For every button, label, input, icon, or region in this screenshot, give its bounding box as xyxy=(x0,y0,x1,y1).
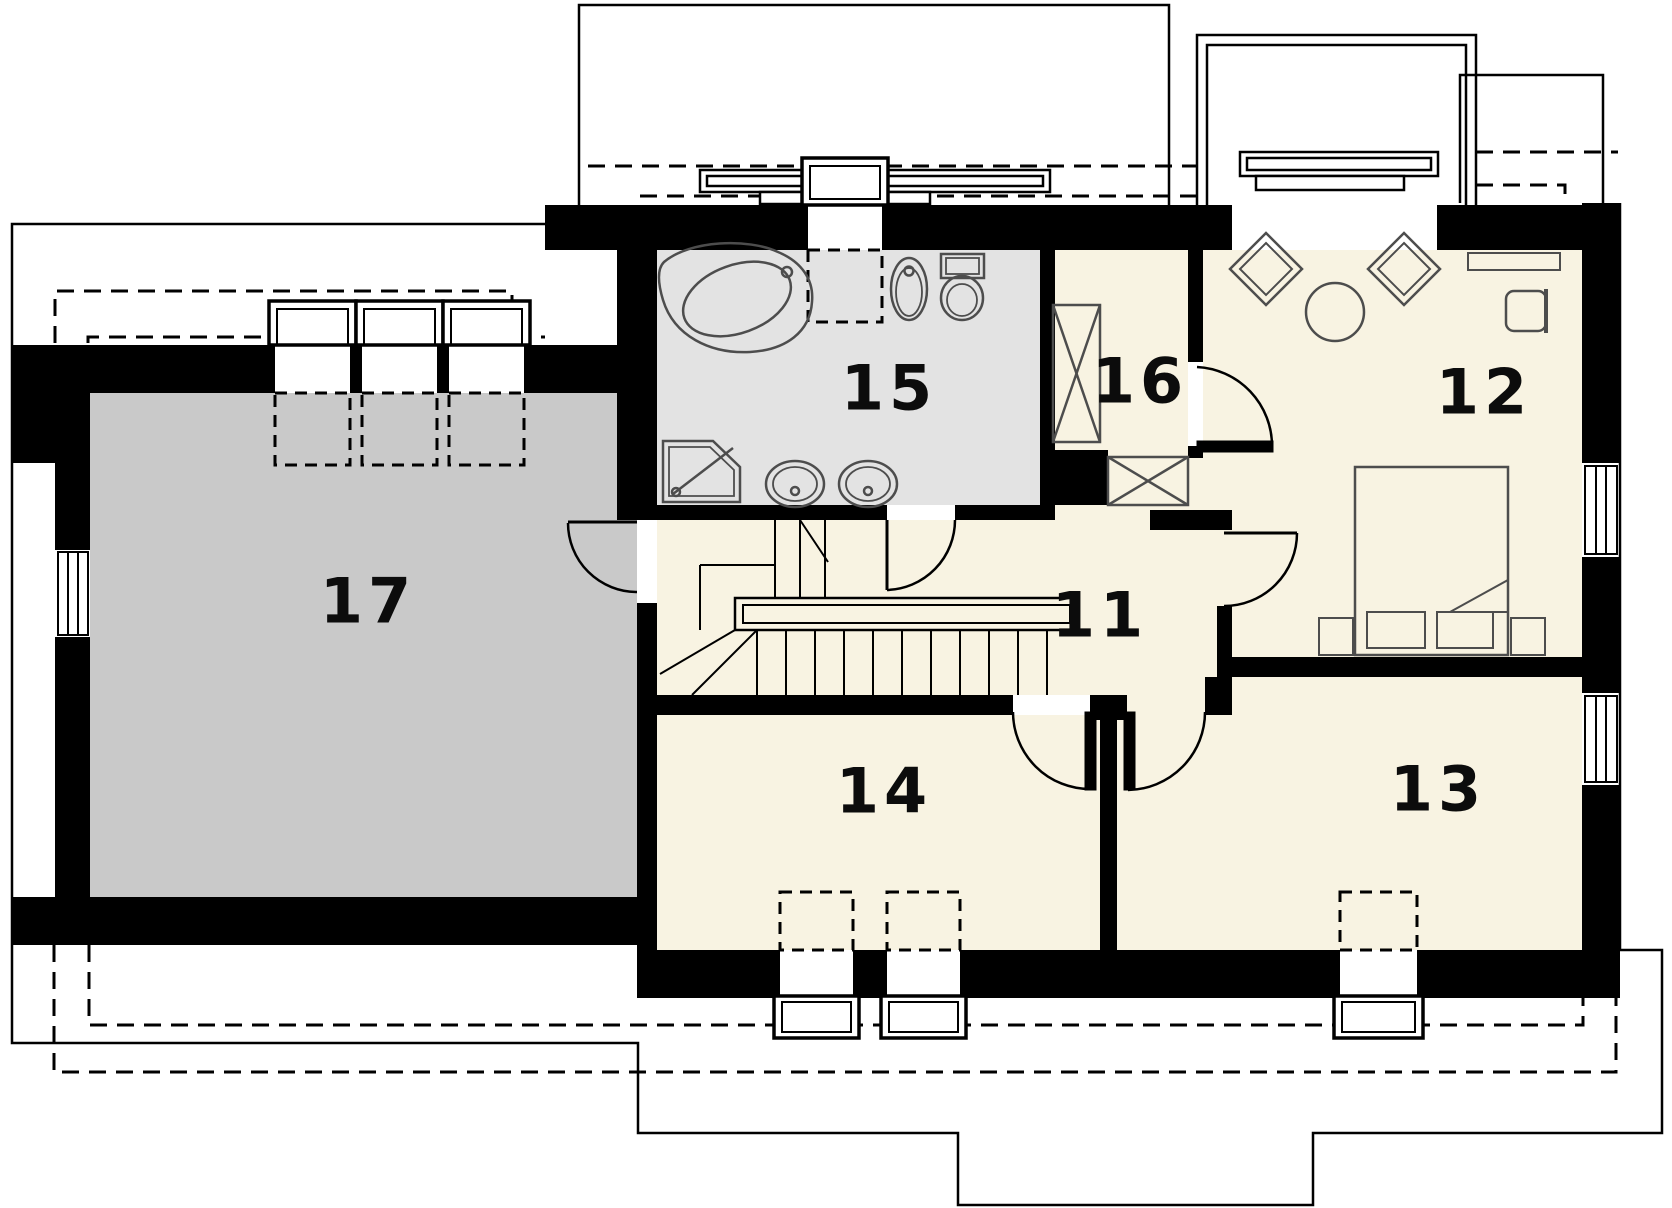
room-labels: 17 15 16 12 11 14 13 xyxy=(0,0,1672,1208)
room-label-13: 13 xyxy=(1390,753,1486,826)
room-label-16: 16 xyxy=(1092,345,1188,418)
room-label-17: 17 xyxy=(320,565,416,638)
room-label-11: 11 xyxy=(1052,579,1148,652)
room-label-15: 15 xyxy=(841,352,937,425)
room-label-12: 12 xyxy=(1436,356,1532,429)
room-label-14: 14 xyxy=(836,755,932,828)
floor-plan: 17 15 16 12 11 14 13 xyxy=(0,0,1672,1208)
